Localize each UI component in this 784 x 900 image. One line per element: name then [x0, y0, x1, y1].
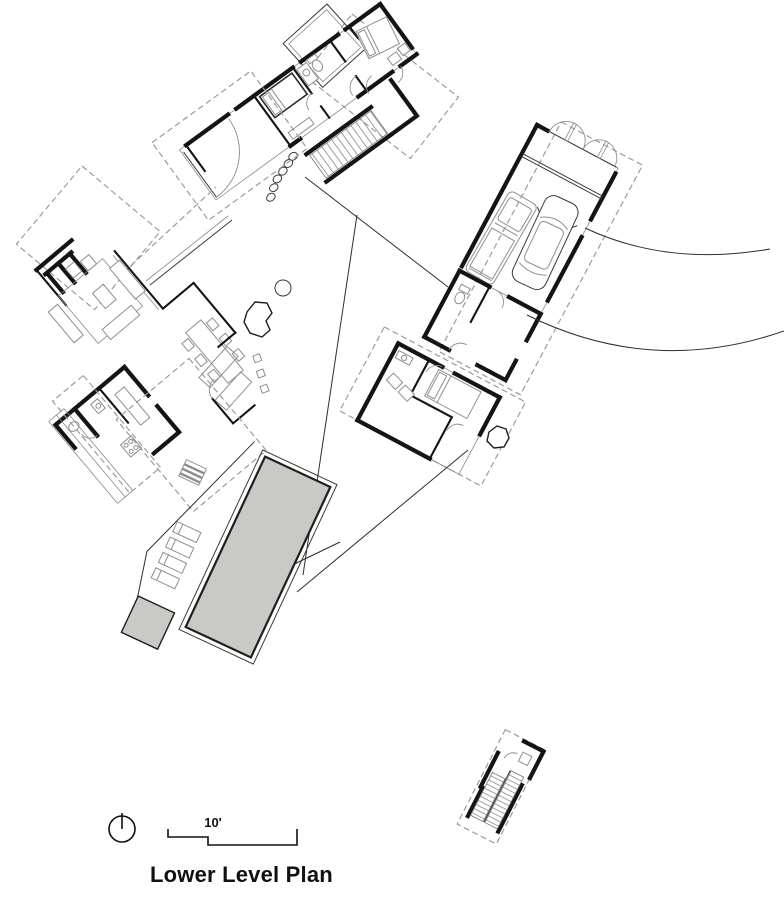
garage-doors: [549, 115, 623, 167]
scale-bar-icon: 10': [168, 815, 297, 845]
chair: [387, 52, 401, 66]
kitchen-sink: [91, 399, 106, 414]
detached-stair-structure: [457, 730, 544, 844]
bench-seat: [48, 304, 83, 342]
dining-set: [178, 313, 251, 389]
guest-bedroom-wing: [340, 327, 526, 486]
stepping-stones: [253, 151, 310, 203]
pool-lounge-chairs: [151, 522, 201, 589]
stair-landing-closet: [518, 752, 531, 765]
guest-chairs: [382, 372, 418, 403]
tree: [275, 280, 291, 296]
upper-bedroom-wing: [152, 0, 446, 251]
guest-sink: [395, 351, 413, 366]
spa: [121, 596, 174, 649]
floor-plan-drawing: 10' Lower Level Plan: [0, 0, 784, 900]
mudroom-bath: [424, 271, 540, 380]
pool-steps: [179, 460, 207, 486]
boulder-2: [487, 426, 509, 448]
pool-terrace: [109, 419, 339, 689]
floor-plan-page: 10' Lower Level Plan: [0, 0, 784, 900]
sofa-2: [102, 305, 139, 339]
plan-title: Lower Level Plan: [150, 862, 333, 887]
walkway: [124, 187, 232, 285]
scale-label: 10': [204, 815, 222, 830]
driveway: [527, 228, 784, 351]
guest-bed: [425, 369, 481, 418]
legend: 10' Lower Level Plan: [109, 813, 333, 887]
boulder: [244, 302, 272, 337]
deck-planks: [49, 409, 133, 504]
north-arrow-icon: [109, 813, 135, 842]
bed-2: [260, 73, 308, 118]
